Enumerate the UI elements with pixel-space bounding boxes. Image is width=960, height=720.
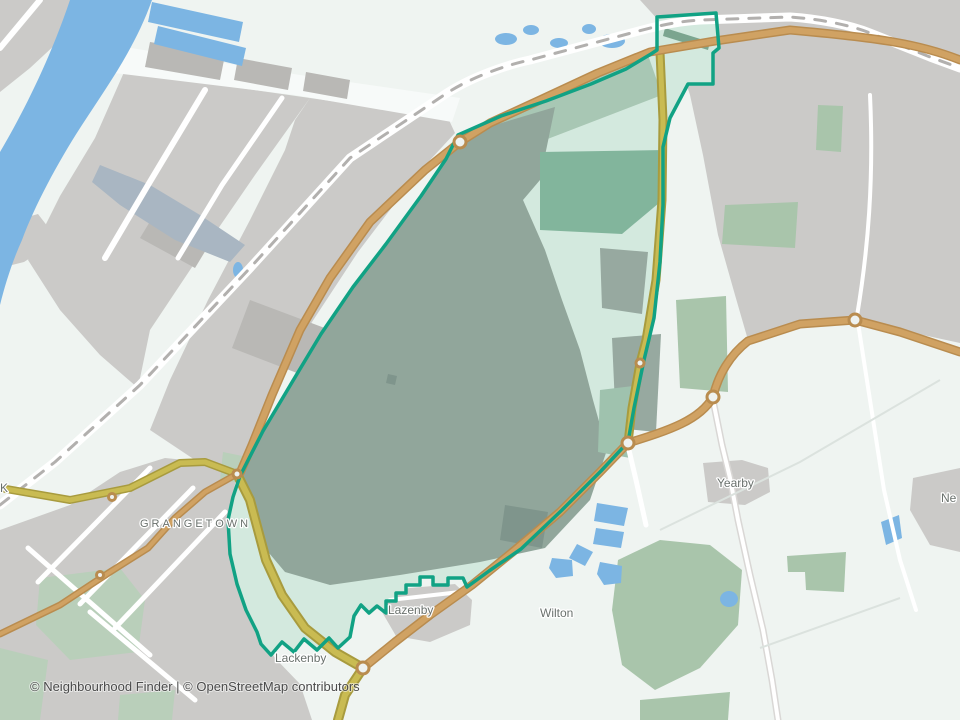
pond: [523, 25, 539, 35]
roundabout-icon: [357, 662, 369, 674]
pond-small: [720, 591, 738, 607]
roundabout-icon: [707, 391, 719, 403]
label-lackenby: Lackenby: [275, 651, 326, 665]
roundabout-icon: [849, 314, 861, 326]
label-grangetown: GRANGETOWN: [140, 518, 251, 530]
label-lazenby: Lazenby: [388, 603, 433, 617]
roundabout-icon: [109, 494, 116, 501]
pond: [582, 24, 596, 34]
label-edge-right: Ne: [941, 491, 957, 505]
roundabout-icon: [97, 572, 104, 579]
roundabout-icon: [636, 359, 644, 367]
label-yearby: Yearby: [717, 476, 754, 490]
roundabout-icon: [622, 437, 634, 449]
works-building-2: [386, 374, 397, 385]
map-attribution: © Neighbourhood Finder | © OpenStreetMap…: [30, 679, 360, 694]
pond: [495, 33, 517, 45]
green-bl-2: [118, 690, 175, 720]
roundabout-icon: [233, 470, 241, 478]
roundabout-icon: [454, 136, 466, 148]
interior-gray-1: [600, 248, 648, 314]
wood-east-2: [816, 105, 843, 152]
map-svg: GRANGETOWN Lazenby Lackenby Wilton Yearb…: [0, 0, 960, 720]
label-wilton: Wilton: [540, 606, 573, 620]
wood-east-1: [722, 202, 798, 248]
map-canvas[interactable]: GRANGETOWN Lazenby Lackenby Wilton Yearb…: [0, 0, 960, 720]
label-edge-left: K: [0, 481, 8, 495]
